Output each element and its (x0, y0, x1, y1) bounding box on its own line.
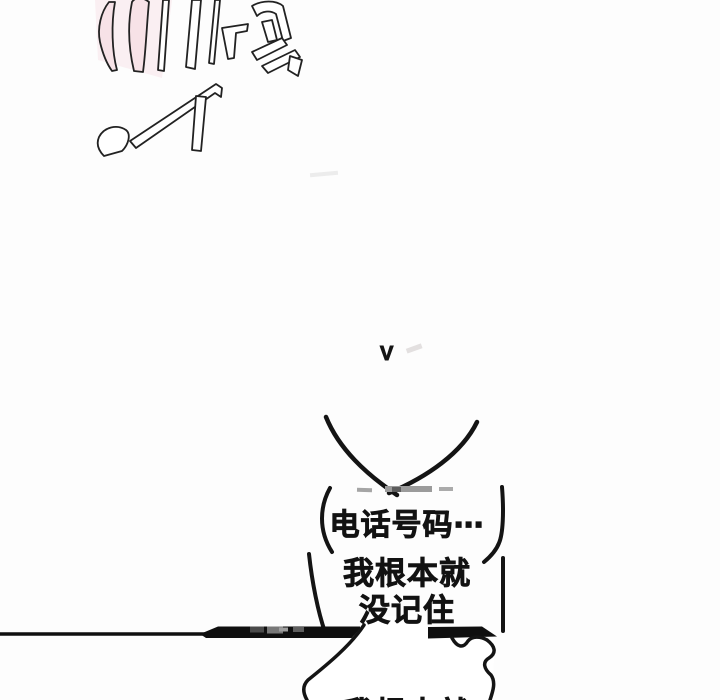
sfx-outline-lettering (95, 0, 338, 177)
comic-panel: V 电话号码⋯ 我根本就 没记住 我根本就 (0, 0, 720, 700)
erased-text-remnant (357, 486, 453, 492)
bubble-memory-text: 我根本就 没记住 (318, 555, 496, 629)
v-mark-smudge (406, 343, 423, 353)
tail-curve-right (389, 422, 477, 493)
sfx-smudge (310, 171, 338, 177)
sfx-v-mark: V (380, 343, 393, 366)
tail-curve-left (326, 417, 397, 495)
bubble-memory-line-1: 我根本就 (318, 555, 496, 592)
speech-tail-curves (326, 417, 477, 495)
bubble-memory-line-2: 没记住 (318, 592, 496, 629)
bubble-bottom-text: 我根本就 (318, 688, 496, 700)
bubble-phone-text: 电话号码⋯ (318, 500, 496, 544)
